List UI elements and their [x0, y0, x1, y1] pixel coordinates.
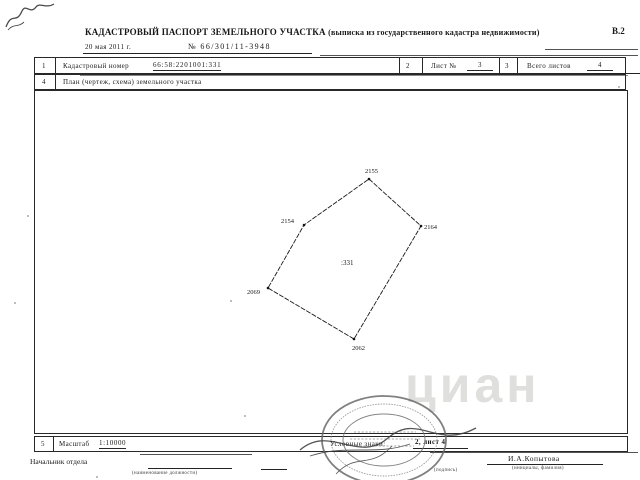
cell-divider [422, 58, 423, 73]
scan-artifact-line [320, 55, 638, 56]
document-date: 20 мая 2011 г. [85, 43, 131, 51]
total-sheets-value: 4 [587, 61, 613, 71]
vertex-label-2155: 2155 [365, 168, 378, 175]
name-hint: (инициалы, фамилия) [512, 466, 564, 471]
parcel-number-label: :331 [341, 259, 354, 267]
scale-label: Масштаб [59, 440, 89, 448]
official-name: И.А.Копытова [508, 454, 560, 463]
scale-value: 1:10000 [99, 439, 126, 449]
scan-artifact-line [545, 49, 638, 50]
cell-divider [517, 58, 518, 73]
vertex-label-2062: 2062 [352, 345, 365, 352]
cell-number-5: 5 [41, 440, 45, 448]
scan-artifact-line [83, 53, 312, 54]
scan-noise-dot [96, 476, 98, 478]
scan-noise-dot [230, 300, 232, 302]
scan-artifact-line [140, 454, 252, 455]
name-line [487, 464, 603, 465]
scan-noise-dot [14, 302, 16, 304]
total-sheets-label: Всего листов [527, 62, 571, 70]
cell-divider [55, 58, 56, 73]
round-stamp [318, 392, 452, 480]
cadastral-number-value: 66:58:2201001:331 [153, 61, 221, 71]
parcel-plan-drawing: 2155 2154 2164 2069 2062 :331 [35, 91, 629, 435]
signature-line [261, 469, 287, 470]
cell-divider [499, 58, 500, 73]
document-number: № 66/301/11-3948 [188, 42, 271, 51]
document-title-main: КАДАСТРОВЫЙ ПАСПОРТ ЗЕМЕЛЬНОГО УЧАСТКА [85, 27, 326, 37]
scan-noise-dot [27, 215, 29, 217]
cell-divider [53, 437, 54, 451]
cadastral-passport-page: КАДАСТРОВЫЙ ПАСПОРТ ЗЕМЕЛЬНОГО УЧАСТКА (… [0, 0, 640, 480]
row-plan-caption: 4 План (чертеж, схема) земельного участк… [34, 74, 626, 90]
official-position: Начальник отдела [30, 457, 87, 466]
form-code: В.2 [612, 26, 625, 36]
scan-noise-dot [244, 415, 246, 417]
document-title-sub: (выписка из государственного кадастра не… [328, 28, 540, 37]
cell-number-3: 3 [505, 62, 509, 70]
vertex-label-2069: 2069 [247, 289, 260, 296]
cell-divider [55, 75, 56, 89]
pen-squiggle-mark [2, 1, 58, 33]
signature-line [148, 468, 232, 469]
cadastral-number-label: Кадастровый номер [63, 62, 129, 70]
sheet-value: 3 [467, 61, 493, 71]
cell-number-4: 4 [42, 78, 46, 86]
document-title: КАДАСТРОВЫЙ ПАСПОРТ ЗЕМЕЛЬНОГО УЧАСТКА (… [85, 27, 540, 37]
scan-artifact-line [430, 452, 638, 453]
position-hint: (наименование должности) [132, 471, 197, 476]
sheet-label: Лист № [431, 62, 457, 70]
cell-divider [399, 58, 400, 73]
plan-caption-label: План (чертеж, схема) земельного участка [63, 78, 202, 86]
plan-drawing-area: циан 2155 2154 2164 2069 2062 :331 [34, 90, 628, 434]
row-cadastral-number: 1 Кадастровый номер 66:58:2201001:331 2 … [34, 57, 626, 74]
vertex-label-2154: 2154 [281, 218, 295, 225]
signature-hint: (подпись) [434, 468, 457, 473]
scan-noise-dot [618, 86, 620, 88]
cell-number-1: 1 [42, 62, 46, 70]
cell-number-2: 2 [406, 62, 410, 70]
vertex-label-2164: 2164 [424, 224, 438, 231]
